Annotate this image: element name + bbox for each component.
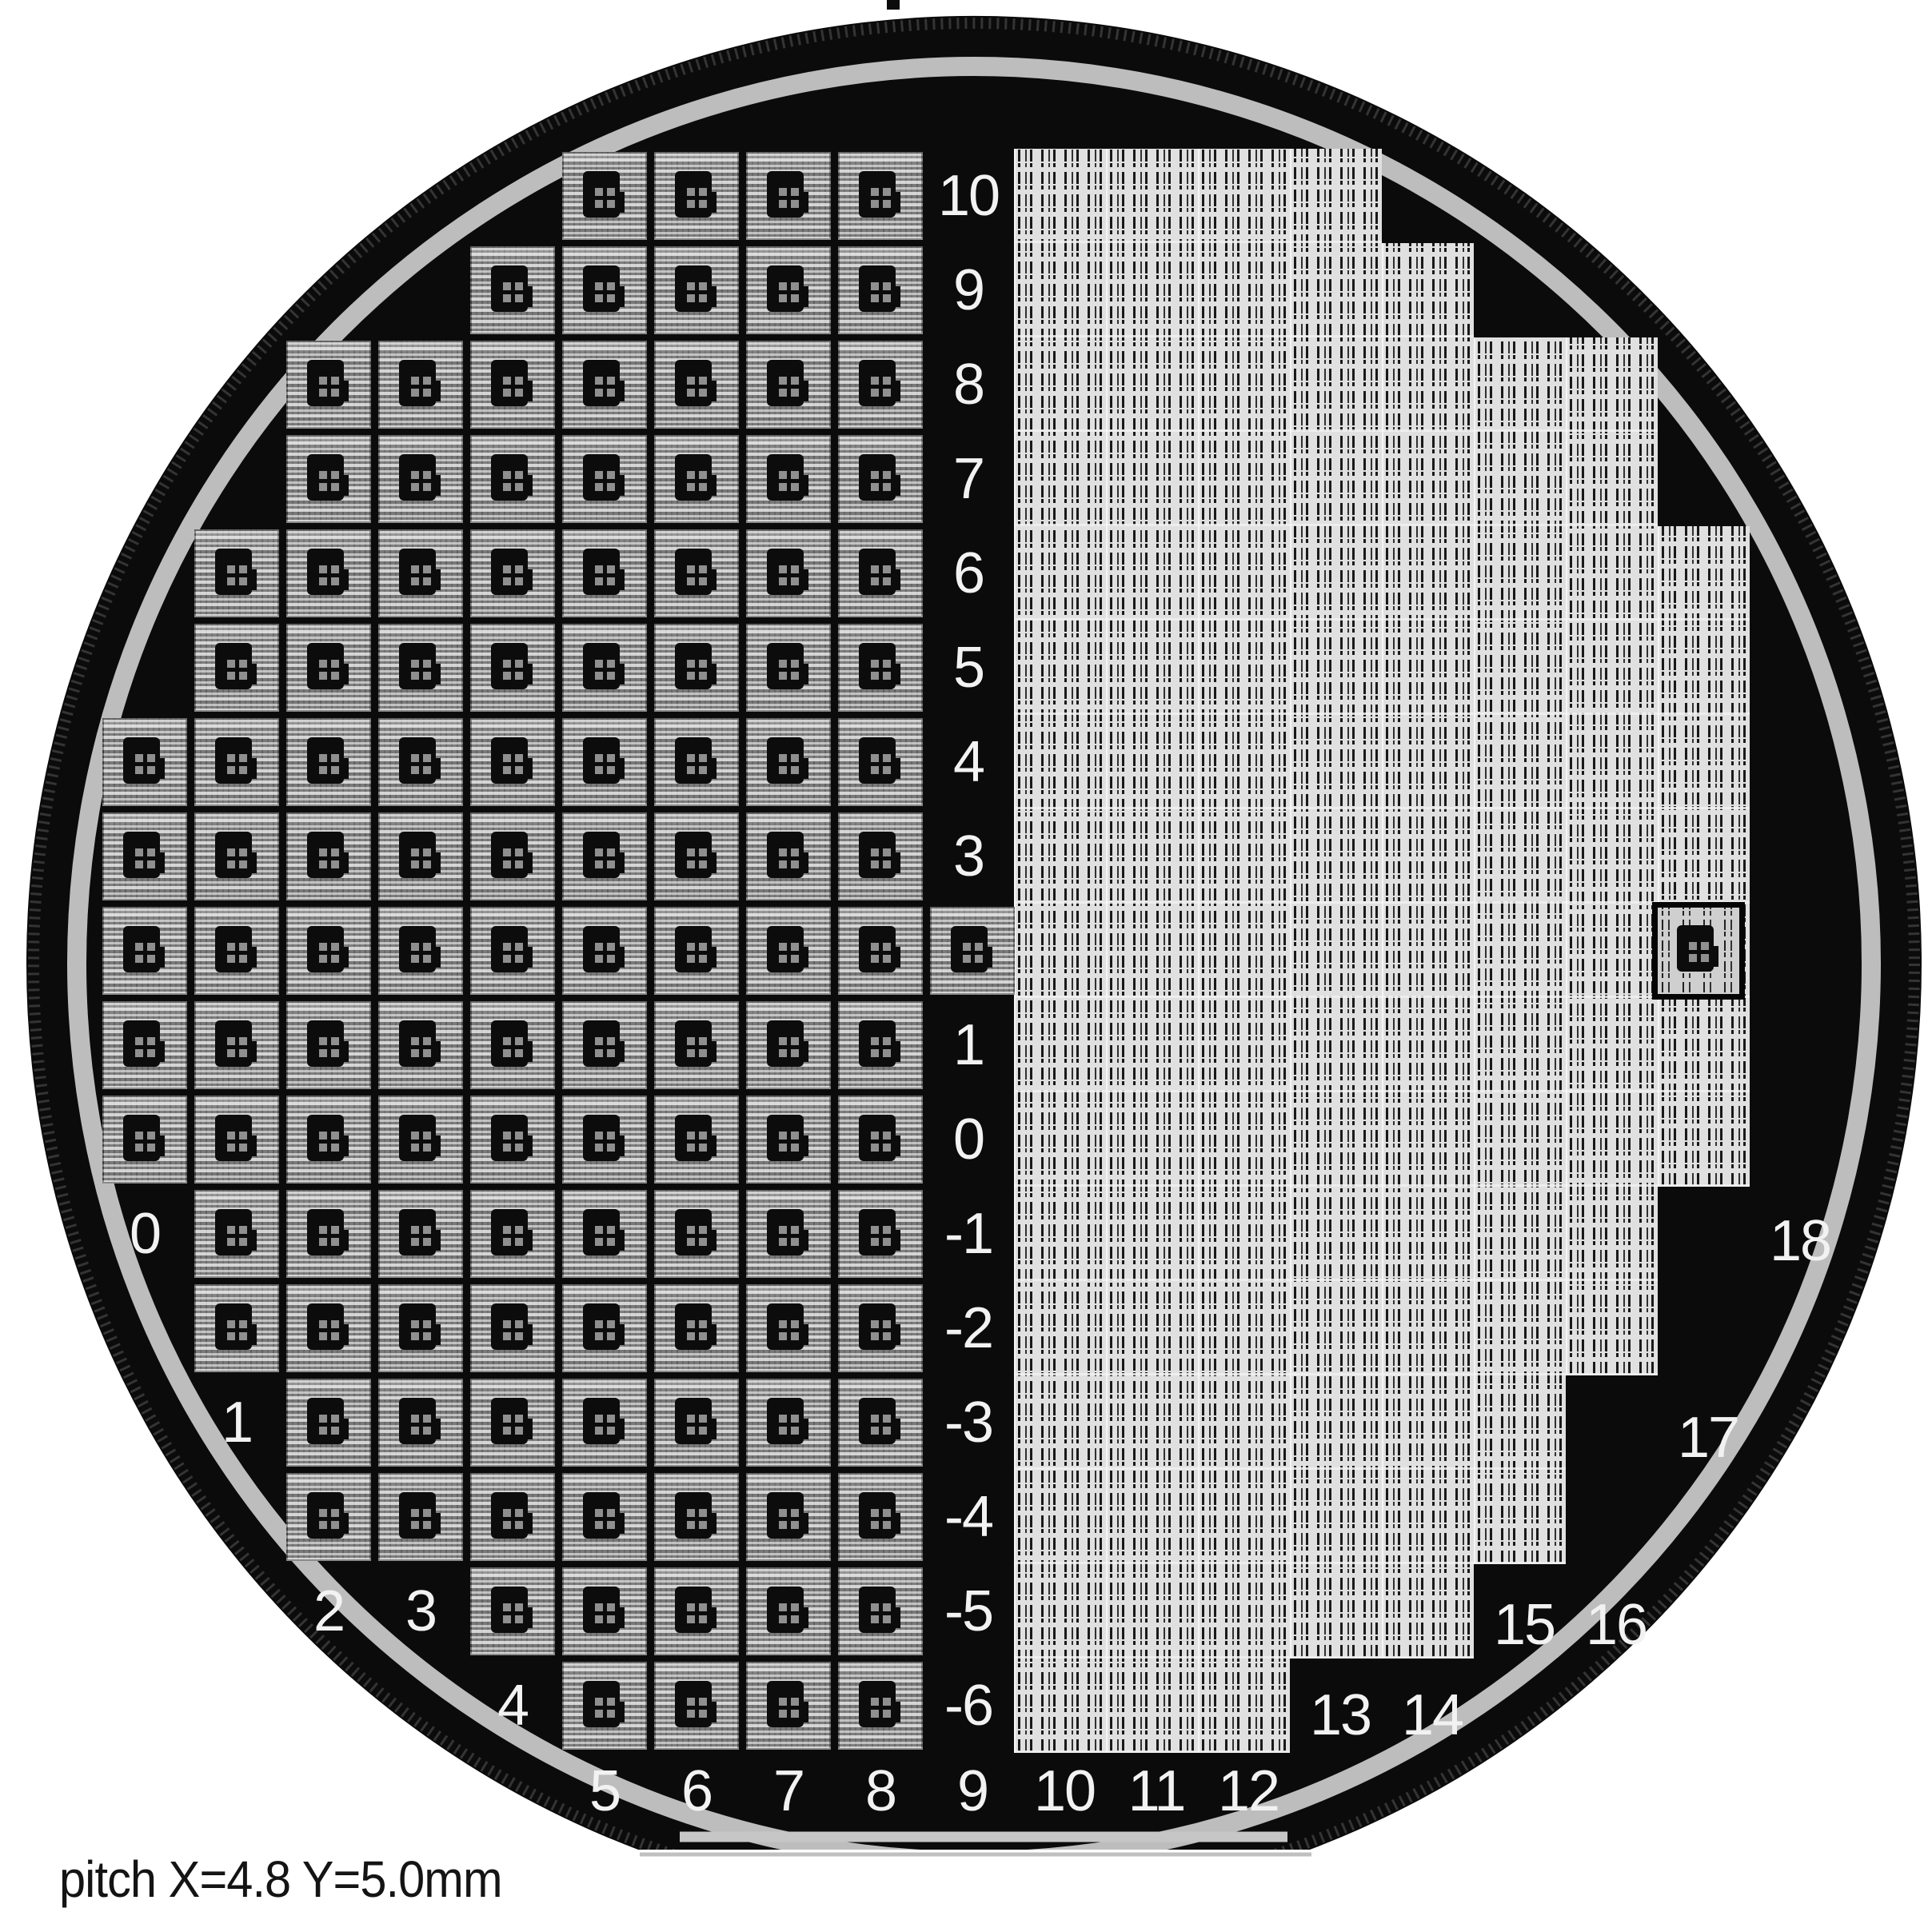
die [562,1096,647,1184]
die-center-structure [767,1398,804,1444]
die-center-structure [583,643,620,689]
pattern-column-13 [1290,149,1382,1659]
pattern-column-17 [1658,526,1750,1187]
pattern-column-11 [1106,149,1198,1753]
die [654,1001,739,1089]
die [838,1190,923,1278]
pitch-caption: pitch X=4.8 Y=5.0mm [59,1854,502,1905]
die [654,1284,739,1372]
die-center-structure [583,171,620,218]
die [286,1379,371,1467]
col-label-0: 0 [130,1205,160,1263]
pattern-column-12 [1198,149,1290,1753]
die-center-structure [675,1587,712,1633]
die [378,624,463,712]
die-center-structure [859,265,896,312]
die [838,246,923,334]
die-center-structure [767,1492,804,1539]
row-label--6: -6 [944,1677,992,1734]
die [746,152,831,240]
die [746,1567,831,1655]
die [102,718,187,806]
die-center-structure [583,1398,620,1444]
die [194,1096,279,1184]
die-center-structure [859,926,896,972]
die-center-structure [491,549,528,595]
die [838,1662,923,1750]
die-center-structure [767,1587,804,1633]
die-center-structure [215,737,252,784]
die [746,1379,831,1467]
die [654,246,739,334]
die [746,246,831,334]
die-center-structure [215,832,252,878]
die [838,718,923,806]
die [838,1473,923,1561]
die-center-structure [399,360,436,406]
die-center-structure [675,454,712,501]
die [470,812,555,900]
die-center-structure [399,1303,436,1350]
die [654,1379,739,1467]
die-center-structure [583,832,620,878]
die-center-structure [675,1020,712,1067]
die [746,718,831,806]
die-center-structure [307,454,344,501]
die [286,624,371,712]
die-center-structure [859,454,896,501]
die [654,1662,739,1750]
col-label-12: 12 [1218,1762,1279,1820]
die-center-structure [675,1303,712,1350]
col-label-5: 5 [589,1762,620,1820]
die [378,1190,463,1278]
col-label-11: 11 [1128,1762,1185,1820]
die-center-structure [675,549,712,595]
die-center-structure [307,1209,344,1255]
die-center-structure [1677,925,1714,972]
die [286,529,371,617]
col-label-8: 8 [865,1762,896,1820]
row-label--1: -1 [944,1205,992,1263]
die-center-structure [399,1020,436,1067]
die [378,812,463,900]
die [378,1096,463,1184]
die [470,907,555,995]
die-center-structure [675,1398,712,1444]
die-center-structure [859,1115,896,1161]
die-center-structure [583,549,620,595]
die-center-structure [859,1020,896,1067]
die [286,907,371,995]
die [746,1001,831,1089]
col-label-15: 15 [1494,1596,1555,1654]
row-label-5: 5 [953,639,984,697]
die-center-structure [215,643,252,689]
die-center-structure [767,454,804,501]
die [470,341,555,429]
die-center-structure [859,171,896,218]
die [194,718,279,806]
row-label--5: -5 [944,1583,992,1640]
die [286,435,371,523]
die-center-structure [767,171,804,218]
row-label-9: 9 [953,261,984,319]
die-center-structure [675,1492,712,1539]
die-center-structure [399,549,436,595]
die-center-structure [307,832,344,878]
die [194,529,279,617]
die [838,1567,923,1655]
die-center-structure [767,1681,804,1727]
die [378,718,463,806]
die [562,435,647,523]
die [470,435,555,523]
die-center-structure [307,926,344,972]
die-center-structure [491,643,528,689]
die [378,907,463,995]
die [654,1567,739,1655]
die-center-structure [583,1681,620,1727]
die-center-structure [583,1020,620,1067]
die [746,529,831,617]
die-center-structure [123,832,160,878]
die [746,341,831,429]
top-edge-artifact [887,0,900,10]
die [194,907,279,995]
die-center-structure [583,1115,620,1161]
die-center-structure [675,171,712,218]
die [470,1284,555,1372]
die-center-structure [307,1398,344,1444]
pattern-column-10 [1014,149,1106,1753]
die [286,1190,371,1278]
die-center-structure [307,737,344,784]
die [746,1190,831,1278]
die-center-structure [215,1209,252,1255]
die [562,1379,647,1467]
die-center-structure [859,549,896,595]
die [838,1001,923,1089]
die-center-structure [583,454,620,501]
die [378,1284,463,1372]
die [746,1284,831,1372]
die-center-structure [583,1492,620,1539]
die-center-structure [767,549,804,595]
row-label-1: 1 [953,1016,984,1074]
die [286,1473,371,1561]
row-label-8: 8 [953,356,984,413]
die [194,1190,279,1278]
die-center-structure [859,643,896,689]
die-center-structure [399,1492,436,1539]
die-center-structure [583,265,620,312]
die [930,907,1015,995]
die [562,624,647,712]
die-center-structure [399,1209,436,1255]
die-center-structure [491,1398,528,1444]
die [746,907,831,995]
die [838,1379,923,1467]
die-center-structure [491,1587,528,1633]
die [562,529,647,617]
die [838,907,923,995]
die [746,1473,831,1561]
die-center-structure [951,926,988,972]
die-center-structure [491,832,528,878]
die [286,1001,371,1089]
die-center-structure [675,265,712,312]
die [562,907,647,995]
die-center-structure [307,1115,344,1161]
die-center-structure [123,926,160,972]
die-center-structure [583,360,620,406]
die [194,812,279,900]
die [470,1567,555,1655]
die [654,1190,739,1278]
die [654,907,739,995]
die-center-structure [491,926,528,972]
row-label-10: 10 [938,167,999,225]
die-center-structure [307,360,344,406]
die-center-structure [491,737,528,784]
die-center-structure [307,549,344,595]
die-center-structure [675,360,712,406]
die [654,152,739,240]
die-center-structure [583,1209,620,1255]
die [838,341,923,429]
die-center-structure [491,454,528,501]
die-center-structure [675,1681,712,1727]
col-label-4: 4 [497,1677,528,1734]
col-label-17: 17 [1678,1409,1738,1467]
die-center-structure [767,737,804,784]
die-center-structure [675,737,712,784]
die [746,1662,831,1750]
die-center-structure [123,1115,160,1161]
die-center-structure [491,1492,528,1539]
die [286,1284,371,1372]
die [286,1096,371,1184]
die [838,435,923,523]
die-center-structure [675,926,712,972]
die [654,624,739,712]
die [470,718,555,806]
die [562,1473,647,1561]
die-center-structure [675,832,712,878]
die [562,1001,647,1089]
die [654,718,739,806]
die-center-structure [399,1115,436,1161]
die [286,718,371,806]
row-label--4: -4 [944,1488,992,1546]
die-center-structure [767,1303,804,1350]
die [378,1001,463,1089]
die-center-structure [767,360,804,406]
die-center-structure [491,1115,528,1161]
die [562,1190,647,1278]
die-center-structure [859,1587,896,1633]
die [746,1096,831,1184]
die-center-structure [399,832,436,878]
die-center-structure [583,1587,620,1633]
die-center-structure [767,926,804,972]
row-label-3: 3 [953,828,984,885]
die-center-structure [675,643,712,689]
die [838,529,923,617]
die-center-structure [123,1020,160,1067]
die-center-structure [215,926,252,972]
col-label-13: 13 [1310,1687,1371,1744]
die-center-structure [123,737,160,784]
die-center-structure [859,737,896,784]
die [562,152,647,240]
die [746,812,831,900]
die [194,1001,279,1089]
die [562,246,647,334]
die-center-structure [307,1020,344,1067]
die [470,529,555,617]
row-label--2: -2 [944,1299,992,1357]
die [470,246,555,334]
die-center-structure [859,1303,896,1350]
die [378,341,463,429]
die [194,1284,279,1372]
die [470,1473,555,1561]
die [378,435,463,523]
die [654,435,739,523]
die-center-structure [859,832,896,878]
die-center-structure [767,643,804,689]
die [102,907,187,995]
die-center-structure [215,1303,252,1350]
col-label-16: 16 [1586,1596,1647,1654]
die-center-structure [491,1020,528,1067]
pattern-column-14 [1382,243,1474,1659]
die [838,1284,923,1372]
die [838,152,923,240]
die [654,1473,739,1561]
die [378,529,463,617]
pattern-column-15 [1474,337,1566,1564]
die [470,1379,555,1467]
col-label-7: 7 [773,1762,804,1820]
die-center-structure [215,549,252,595]
die [746,435,831,523]
die-center-structure [583,926,620,972]
col-label-9: 9 [957,1762,988,1820]
die-center-structure [583,737,620,784]
col-label-6: 6 [681,1762,712,1820]
die-center-structure [491,1303,528,1350]
die [654,812,739,900]
die-center-structure [307,1303,344,1350]
die-center-structure [215,1020,252,1067]
die [286,341,371,429]
die-center-structure [767,1020,804,1067]
die-center-structure [859,1398,896,1444]
die [654,341,739,429]
die-center-structure [399,926,436,972]
die [654,529,739,617]
die-center-structure [399,454,436,501]
die-center-structure [215,1115,252,1161]
die [562,1662,647,1750]
die-center-structure [583,1303,620,1350]
die [562,1567,647,1655]
die-center-structure [675,1209,712,1255]
die-center-structure [491,265,528,312]
die-center-structure [859,1492,896,1539]
die-center-structure [399,737,436,784]
die [102,1096,187,1184]
col-label-14: 14 [1402,1687,1463,1744]
die-center-structure [859,360,896,406]
die [746,624,831,712]
die-center-structure [491,1209,528,1255]
die [378,1473,463,1561]
row-label--3: -3 [944,1394,992,1451]
die [470,624,555,712]
die [562,718,647,806]
die-center-structure [491,360,528,406]
die [286,812,371,900]
pattern-column-16 [1566,337,1658,1375]
row-label-4: 4 [953,733,984,791]
die-center-structure [399,1398,436,1444]
die [102,1001,187,1089]
highlighted-die [1652,902,1745,1000]
col-label-1: 1 [222,1394,252,1451]
die [654,1096,739,1184]
die-center-structure [307,1492,344,1539]
die [470,1190,555,1278]
die [838,812,923,900]
die-center-structure [859,1209,896,1255]
die [194,624,279,712]
die [102,812,187,900]
die [838,624,923,712]
die [470,1001,555,1089]
die [562,812,647,900]
row-label-6: 6 [953,545,984,602]
die [470,1096,555,1184]
die [562,1284,647,1372]
col-label-3: 3 [405,1583,436,1640]
row-label-0: 0 [953,1111,984,1168]
row-label-7: 7 [953,450,984,508]
die-center-structure [767,265,804,312]
die [838,1096,923,1184]
die-center-structure [859,1681,896,1727]
die-center-structure [767,832,804,878]
die-center-structure [767,1115,804,1161]
col-label-2: 2 [313,1583,344,1640]
die [378,1379,463,1467]
die-center-structure [675,1115,712,1161]
die-center-structure [767,1209,804,1255]
col-label-18: 18 [1770,1212,1830,1270]
col-label-10: 10 [1034,1762,1095,1820]
die [562,341,647,429]
die-center-structure [307,643,344,689]
die-center-structure [399,643,436,689]
wafer-map-scan: 10987654310-1-2-3-4-5-601234567891011121… [0,0,1932,1932]
